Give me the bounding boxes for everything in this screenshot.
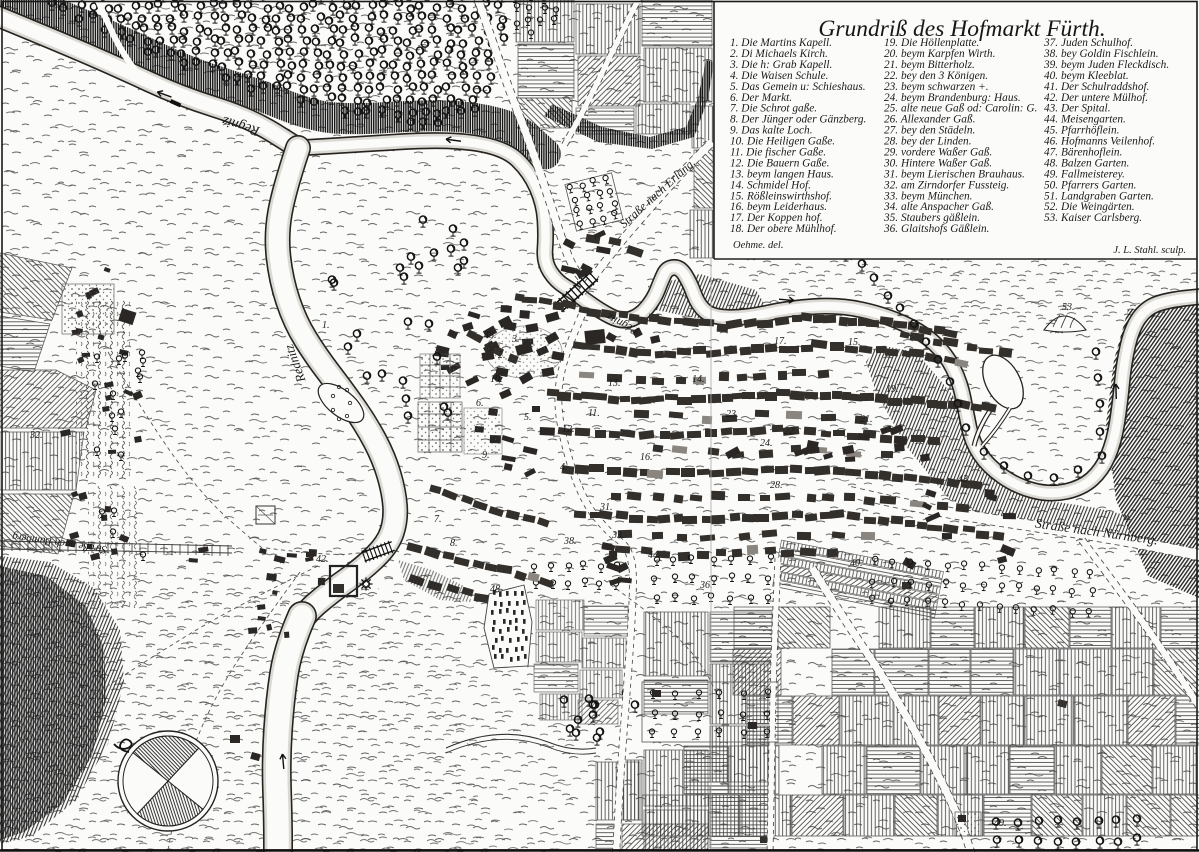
- svg-text:24.: 24.: [760, 438, 773, 449]
- svg-text:48.: 48.: [490, 584, 503, 595]
- svg-text:22.: 22.: [784, 426, 797, 437]
- svg-text:33.: 33.: [611, 530, 625, 541]
- svg-text:53.: 53.: [1062, 302, 1075, 313]
- svg-text:7.: 7.: [434, 514, 442, 525]
- svg-text:17.: 17.: [774, 336, 787, 347]
- svg-text:28.: 28.: [770, 480, 783, 491]
- svg-text:44.: 44.: [648, 550, 661, 561]
- svg-text:45.: 45.: [484, 330, 497, 341]
- svg-text:5.: 5.: [524, 412, 532, 423]
- svg-text:Oehme. del.: Oehme. del.: [733, 240, 783, 251]
- svg-text:1.: 1.: [322, 320, 330, 331]
- svg-text:10.: 10.: [490, 374, 503, 385]
- svg-text:42.: 42.: [316, 554, 329, 565]
- svg-text:36.: 36.: [699, 580, 713, 591]
- svg-text:49.: 49.: [994, 818, 1007, 829]
- svg-text:21.: 21.: [860, 414, 873, 425]
- svg-text:12.: 12.: [562, 424, 575, 435]
- svg-text:36. Glaitshofs Gäßlein.: 36. Glaitshofs Gäßlein.: [883, 223, 989, 235]
- svg-text:18. Der obere Mühlhof.: 18. Der obere Mühlhof.: [730, 223, 837, 235]
- svg-text:15.: 15.: [848, 337, 861, 348]
- svg-text:3.: 3.: [511, 334, 520, 345]
- svg-text:8.: 8.: [450, 538, 458, 549]
- svg-text:13.: 13.: [608, 378, 621, 389]
- svg-text:11.: 11.: [588, 408, 600, 419]
- svg-text:23.: 23.: [726, 409, 739, 420]
- svg-text:19.: 19.: [886, 384, 899, 395]
- svg-text:6.: 6.: [476, 398, 484, 409]
- svg-text:J. L. Stahl. sculp.: J. L. Stahl. sculp.: [1113, 245, 1186, 256]
- svg-text:53. Kaiser Carlsberg.: 53. Kaiser Carlsberg.: [1044, 212, 1142, 224]
- svg-text:40.: 40.: [850, 558, 863, 569]
- svg-text:32.: 32.: [29, 430, 43, 441]
- svg-text:31.: 31.: [599, 502, 613, 513]
- svg-text:43.: 43.: [958, 474, 971, 485]
- svg-text:16.: 16.: [640, 452, 653, 463]
- svg-text:14.: 14.: [692, 374, 705, 385]
- svg-text:38.: 38.: [563, 536, 577, 547]
- svg-text:4.: 4.: [560, 462, 568, 473]
- svg-text:2.: 2.: [498, 350, 506, 361]
- svg-text:9.: 9.: [482, 450, 490, 461]
